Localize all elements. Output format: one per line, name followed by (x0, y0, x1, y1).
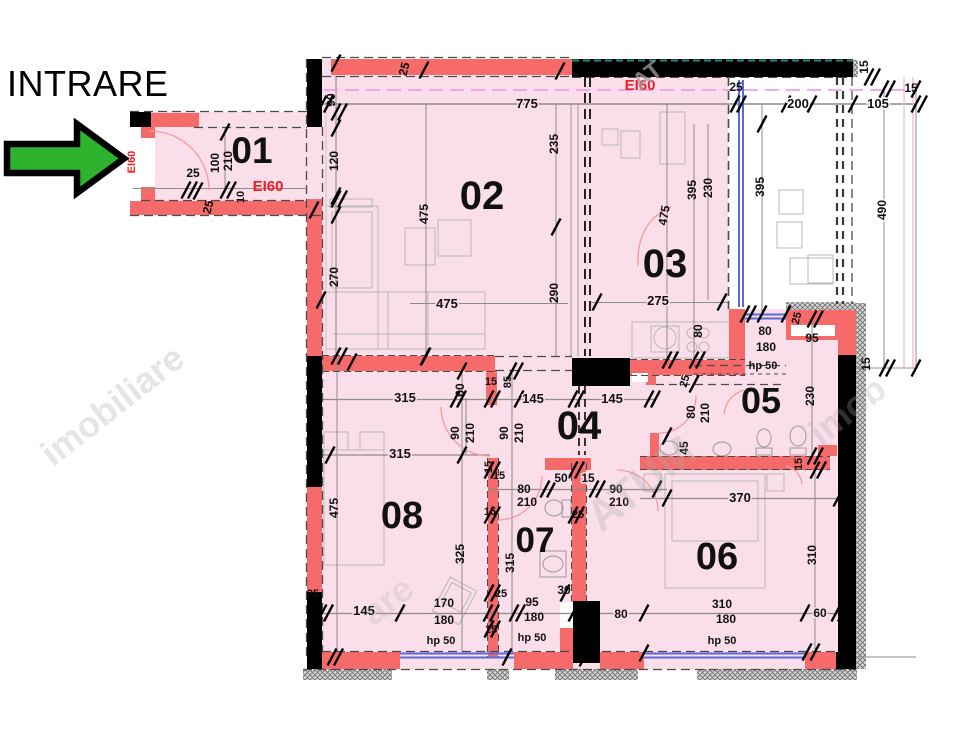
svg-text:hp 50: hp 50 (749, 360, 778, 372)
svg-text:200: 200 (787, 96, 809, 111)
svg-text:15: 15 (793, 458, 805, 470)
svg-text:475: 475 (417, 204, 431, 224)
svg-text:15: 15 (485, 624, 497, 636)
svg-text:180: 180 (756, 340, 776, 354)
svg-text:80: 80 (758, 324, 772, 338)
svg-text:15: 15 (857, 60, 871, 74)
svg-text:01: 01 (231, 130, 272, 171)
svg-text:02: 02 (460, 174, 505, 218)
svg-text:hp 50: hp 50 (708, 635, 737, 647)
svg-text:80: 80 (517, 482, 531, 496)
svg-text:395: 395 (753, 177, 767, 197)
svg-text:60: 60 (813, 606, 827, 620)
svg-text:315: 315 (394, 390, 416, 405)
svg-text:90: 90 (497, 426, 511, 440)
svg-text:290: 290 (547, 283, 561, 303)
svg-text:85: 85 (502, 376, 514, 388)
svg-text:30: 30 (557, 583, 571, 597)
svg-text:08: 08 (381, 495, 423, 537)
svg-text:80: 80 (691, 324, 705, 338)
svg-text:490: 490 (875, 200, 889, 220)
svg-text:475: 475 (327, 498, 341, 518)
svg-text:80: 80 (684, 405, 698, 419)
svg-text:95: 95 (805, 331, 819, 345)
svg-text:275: 275 (647, 293, 669, 308)
svg-text:210: 210 (698, 403, 712, 423)
svg-text:hp 50: hp 50 (518, 632, 547, 644)
svg-text:25: 25 (572, 509, 584, 521)
svg-text:EI60: EI60 (253, 178, 284, 195)
svg-text:80: 80 (614, 607, 628, 621)
svg-text:06: 06 (696, 536, 738, 578)
svg-text:10: 10 (235, 191, 247, 203)
svg-text:95: 95 (525, 595, 539, 609)
svg-text:310: 310 (712, 597, 732, 611)
svg-text:15: 15 (485, 376, 497, 388)
svg-text:235: 235 (547, 134, 561, 154)
svg-text:hp 50: hp 50 (427, 635, 456, 647)
svg-text:90: 90 (448, 426, 462, 440)
svg-text:15: 15 (904, 81, 918, 95)
svg-text:04: 04 (557, 404, 602, 448)
svg-text:230: 230 (701, 178, 715, 198)
svg-text:475: 475 (436, 296, 458, 311)
svg-text:120: 120 (327, 151, 341, 171)
svg-text:25: 25 (495, 588, 507, 600)
svg-text:310: 310 (805, 545, 819, 565)
svg-text:145: 145 (522, 391, 544, 406)
svg-text:370: 370 (729, 490, 751, 505)
svg-text:07: 07 (516, 521, 555, 560)
svg-text:100: 100 (208, 153, 222, 173)
svg-text:210: 210 (517, 495, 537, 509)
svg-text:90: 90 (324, 93, 338, 107)
svg-text:15: 15 (493, 470, 505, 482)
svg-text:15: 15 (581, 471, 595, 485)
svg-text:230: 230 (803, 386, 817, 406)
svg-text:395: 395 (685, 180, 699, 200)
svg-text:170: 170 (434, 596, 454, 610)
svg-text:180: 180 (716, 612, 736, 626)
svg-text:180: 180 (434, 613, 454, 627)
svg-text:03: 03 (643, 242, 688, 286)
svg-text:210: 210 (463, 423, 477, 443)
svg-text:25: 25 (186, 166, 200, 180)
svg-text:210: 210 (512, 423, 526, 443)
svg-text:25: 25 (307, 588, 319, 600)
svg-text:315: 315 (389, 446, 411, 461)
svg-text:INTRARE: INTRARE (7, 63, 169, 104)
svg-text:145: 145 (601, 391, 623, 406)
svg-text:105: 105 (867, 96, 889, 111)
svg-text:15: 15 (484, 506, 496, 518)
svg-text:50: 50 (554, 471, 568, 485)
svg-text:270: 270 (327, 267, 341, 287)
svg-text:EI60: EI60 (126, 151, 138, 174)
svg-text:180: 180 (524, 610, 544, 624)
svg-text:25: 25 (729, 80, 743, 94)
svg-text:315: 315 (503, 553, 517, 573)
svg-text:775: 775 (516, 96, 538, 111)
svg-text:210: 210 (221, 151, 235, 171)
svg-text:05: 05 (741, 380, 781, 421)
svg-text:60: 60 (453, 383, 467, 397)
svg-text:325: 325 (453, 544, 467, 564)
